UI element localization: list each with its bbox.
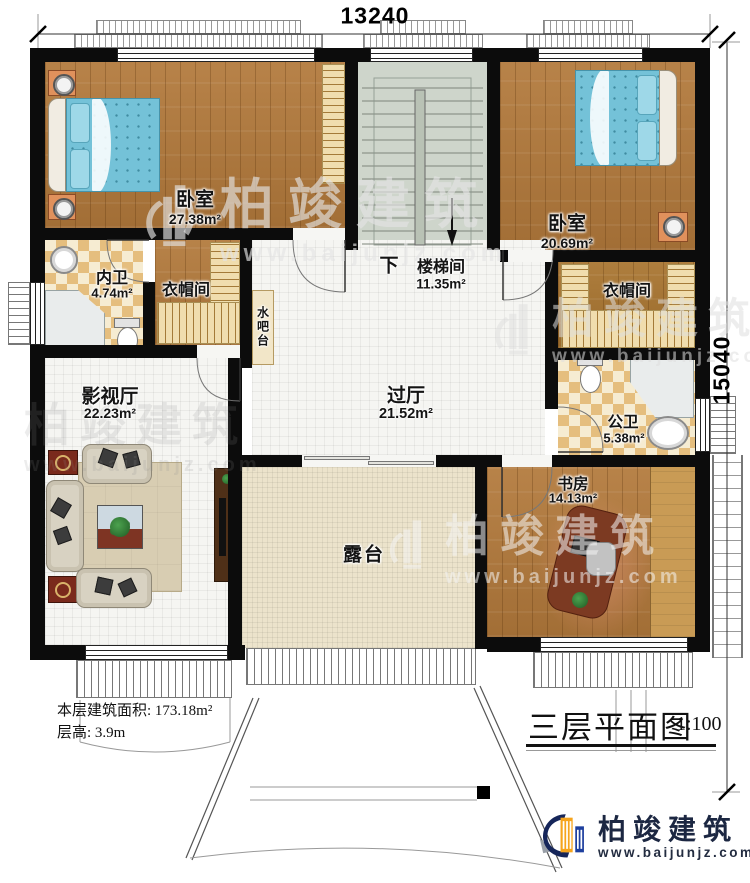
room-area-stairwell: 11.35m² xyxy=(416,277,466,292)
floor-area-text: 本层建筑面积: 173.18m² xyxy=(57,699,212,720)
stair-glyph xyxy=(362,78,483,246)
stair-down-label: 下 xyxy=(379,251,398,278)
room-label-closet-right: 衣帽间 xyxy=(603,277,651,301)
room-label-bedroom-right: 卧室 xyxy=(548,209,586,236)
room-label-water-bar: 水吧台 xyxy=(255,306,272,348)
room-area-bedroom-left: 27.38m² xyxy=(169,211,221,227)
title-underline xyxy=(526,744,716,747)
room-area-ensuite: 4.74m² xyxy=(91,286,132,301)
room-label-hall: 过厅 xyxy=(387,381,425,408)
room-label-ensuite: 内卫 xyxy=(96,264,128,288)
room-area-study: 14.13m² xyxy=(549,491,597,506)
room-label-closet-left: 衣帽间 xyxy=(162,276,210,300)
company-name: 柏竣建筑 xyxy=(598,808,738,848)
room-area-hall: 21.52m² xyxy=(379,406,433,422)
room-label-bedroom-left: 卧室 xyxy=(176,185,214,212)
floor-plan-canvas: 柏竣建筑 www.baijunjz.com 柏竣建筑 www.baijunjz.… xyxy=(0,0,750,883)
room-area-media: 22.23m² xyxy=(84,405,136,421)
title-underline-thin xyxy=(526,750,716,751)
dimension-right: 15040 xyxy=(709,336,736,405)
room-label-terrace: 露台 xyxy=(343,540,385,567)
room-label-stairwell: 楼梯间 xyxy=(417,253,465,277)
company-website: www.baijunjz.com xyxy=(598,845,750,860)
room-label-public-bath: 公卫 xyxy=(607,410,638,432)
company-logo-icon xyxy=(538,806,590,864)
room-area-bedroom-right: 20.69m² xyxy=(541,235,593,251)
room-area-public-bath: 5.38m² xyxy=(603,431,644,446)
drawing-scale: 1:100 xyxy=(676,713,722,736)
drawing-title: 三层平面图 xyxy=(528,702,693,747)
dimension-top: 13240 xyxy=(341,3,410,30)
floor-height-text: 层高: 3.9m xyxy=(57,721,125,742)
